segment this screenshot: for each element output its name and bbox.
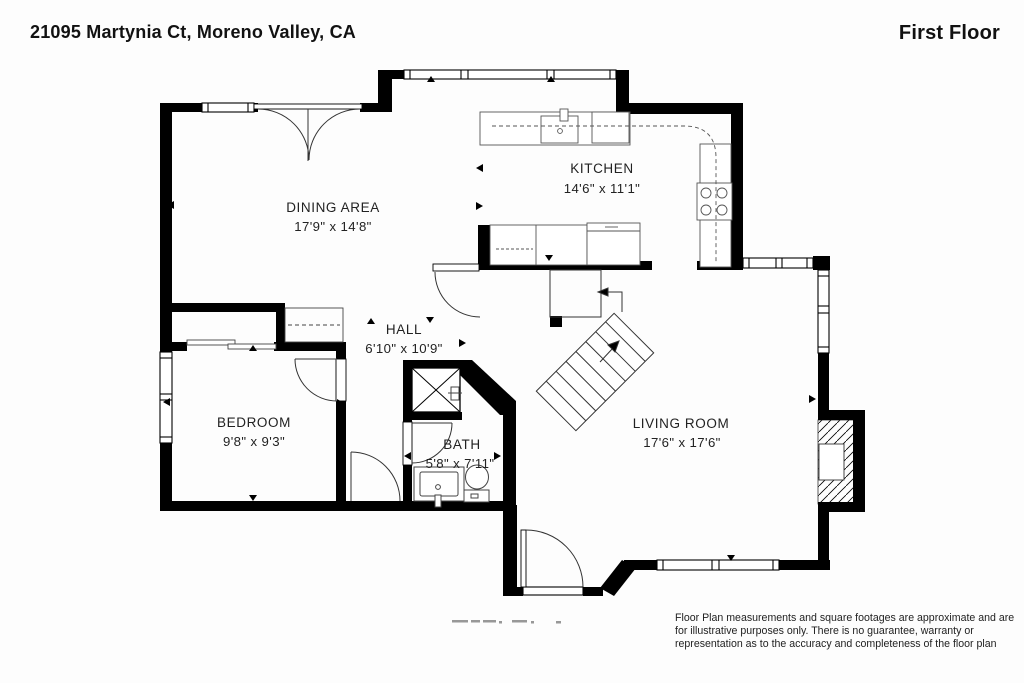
window-living-top [743, 258, 813, 268]
door-kitchen-entry [433, 264, 480, 317]
kitchen-peninsula [490, 225, 587, 265]
window-living-right [818, 270, 829, 353]
bedroom-closet-bypass-doors [187, 340, 276, 349]
firebox [819, 444, 844, 480]
window-bedroom-left [160, 352, 172, 443]
stair-upper-flight [550, 270, 601, 317]
room-label-kitchen: KITCHEN [570, 161, 633, 176]
refrigerator [592, 112, 629, 143]
stairs [536, 270, 653, 431]
room-dims-bedroom: 9'8" x 9'3" [223, 434, 285, 449]
room-dims-kitchen: 14'6" x 11'1" [564, 181, 641, 196]
window-living-bottom [657, 560, 779, 570]
hall-closet [285, 308, 343, 342]
room-label-dining: DINING AREA [286, 200, 380, 215]
faded-text-fragment [452, 620, 561, 624]
floor-plan-page: 21095 Martynia Ct, Moreno Valley, CA Fir… [0, 0, 1024, 683]
fireplace [818, 410, 865, 512]
room-dims-dining: 17'9" x 14'8" [294, 219, 372, 234]
french-doors-dining [254, 104, 362, 161]
room-dims-hall: 6'10" x 10'9" [365, 341, 443, 356]
room-label-hall: HALL [386, 322, 422, 337]
stove [697, 183, 732, 220]
room-labels: DINING AREA 17'9" x 14'8" KITCHEN 14'6" … [217, 161, 729, 471]
front-door [521, 530, 583, 587]
disclaimer-text: Floor Plan measurements and square foota… [675, 612, 1023, 651]
front-door-threshold [523, 587, 583, 595]
room-label-bedroom: BEDROOM [217, 415, 291, 430]
room-label-bath: BATH [443, 437, 480, 452]
window-kitchen-nook [404, 70, 616, 79]
room-dims-bath: 5'8" x 7'11" [426, 456, 495, 471]
shower [412, 368, 462, 412]
stair-winders [536, 313, 653, 430]
room-label-living: LIVING ROOM [633, 416, 730, 431]
door-bedroom [295, 359, 346, 401]
kitchen-appliance [587, 223, 640, 265]
floor-plan-drawing: DINING AREA 17'9" x 14'8" KITCHEN 14'6" … [0, 0, 1024, 683]
window-dining-top [202, 103, 254, 112]
bath-vanity [414, 467, 464, 507]
door-hall-vestibule [351, 452, 400, 501]
room-dims-living: 17'6" x 17'6" [643, 435, 721, 450]
